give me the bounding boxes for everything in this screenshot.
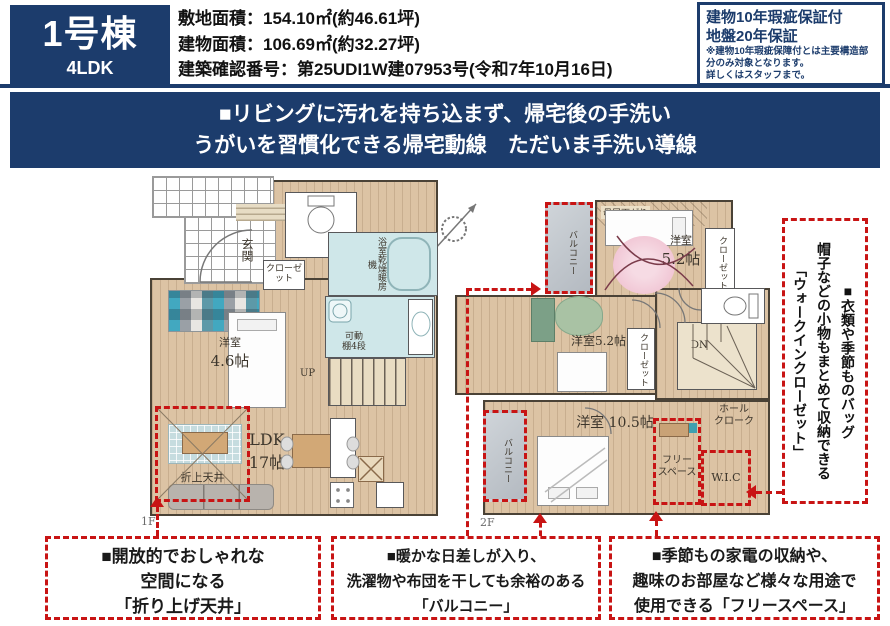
main-bed-pillow-2 [576,487,598,499]
stairs-down [677,322,757,390]
side-note-line-1: ■衣類や季節ものバッグ [836,227,860,495]
2f-main-bed [537,436,609,506]
stove [330,482,354,508]
free-space-item [689,423,697,433]
bath-dryer-label: 浴室乾燥暖房機 [366,236,386,292]
1f-floor-label: 1F [141,515,156,528]
side-note-line-3: 「ウォークインクローゼット」 [788,227,812,495]
kitchen-pantry-box [358,456,384,482]
coffered-ceiling-highlight-box [155,406,250,502]
unit-number: 1号棟 [10,11,170,57]
connector-freespace-arrow [649,511,663,521]
genkan-label: 玄関 [239,224,256,276]
balcony-bottom: バルコニー [483,410,527,502]
connector-balcony-bottom-line [539,522,542,536]
callout-coffered-ceiling: ■開放的でおしゃれな 空間になる 「折り上げ天井」 [45,536,321,620]
callout-balcony: ■暖かな日差しが入り、 洗濯物や布団を干しても余裕のある 「バルコニー」 [331,536,601,620]
connector-ceiling-arrow [150,497,164,507]
main-bed-pillow-1 [548,487,570,499]
floorplan-2f: バルコニー 母屋下がり 洋室 5.2帖 クローゼット 洋室5.2帖 クローゼット… [455,190,775,525]
connector-ceiling-line [156,506,159,536]
free-space-label: フリー スペース [656,455,698,479]
bed-pillow [237,319,277,331]
warranty-title-1: 建物10年瑕疵保証付 [706,8,876,27]
catchcopy-banner: ■リビングに汚れを持ち込まず、帰宅後の手洗い うがいを習慣化できる帰宅動線 ただ… [10,92,880,168]
2f-floor-label: 2F [480,516,495,529]
building-area: 建物面積：106.69㎡(約32.27坪) [178,32,693,58]
balcony-bottom-label: バルコニー [501,427,514,493]
connector-balcony-vline [466,290,469,536]
banner-line-2: うがいを習慣化できる帰宅動線 ただいま手洗い導線 [10,130,880,161]
connector-balcony-bottom-arrow [533,513,547,523]
callout-free-space: ■季節もの家電の収納や、 趣味のお部屋など様々な用途で 使用できる「フリースペー… [609,536,880,620]
connector-balcony-top-arrow [531,282,541,296]
movable-shelf-label: 可動 棚4段 [337,332,371,352]
banner-line-1: ■リビングに汚れを持ち込まず、帰宅後の手洗い [10,99,880,130]
2f-mid-bed [557,352,607,392]
room-52a-label: 洋室 5.2帖 [643,232,719,269]
bedroom-46-label: 洋室 4.6帖 [200,334,260,371]
unit-layout-type: 4LDK [10,57,170,79]
wic-highlight-box: W.I.C [701,450,751,506]
free-space-desk [659,423,689,437]
connector-wic-line [756,491,782,494]
unit-number-box: 1号棟 4LDK [10,5,170,84]
connector-freespace-line [655,520,658,536]
wic-side-note: ■衣類や季節ものバッグ 帽子などの小物もまとめて収納できる 「ウォークインクロー… [782,218,868,504]
balcony-top: バルコニー [545,202,593,294]
dn-label: DN [691,340,708,351]
hall-cloak-label: ホール クローク [703,404,765,428]
connector-wic-arrow [746,485,756,499]
up-label: UP [300,368,315,379]
refrigerator [376,482,404,508]
land-area: 敷地面積：154.10㎡(約46.61坪) [178,6,693,32]
wic-label: W.I.C [704,471,748,484]
balcony-top-label: バルコニー [566,219,579,285]
warranty-box: 建物10年瑕疵保証付 地盤20年保証 ※建物10年瑕疵保障付とは主要構造部分のみ… [697,2,885,86]
vanity [408,299,433,355]
floorplan-1f: 玄関 浴室乾燥暖房機 可動 棚4段 クローゼット 洋室 4.6帖 UP LDK … [140,172,440,522]
free-space-highlight-box: フリー スペース [653,418,701,505]
room-52b-label: 洋室5.2帖 [551,332,646,349]
warranty-note-1: ※建物10年瑕疵保障付とは主要構造部分のみ対象となります。 [706,46,876,70]
green-rug [555,296,603,336]
connector-balcony-hline [466,288,532,291]
stairs-up [328,358,406,406]
side-note-line-2: 帽子などの小物もまとめて収納できる [812,227,836,495]
2f-toilet-room [701,288,765,324]
warranty-note-2: 詳しくはスタッフまで。 [706,70,876,82]
confirmation-number: 建築確認番号：第25UDI1W建07953号(令和7年10月16日) [178,57,693,83]
warranty-title-2: 地盤20年保証 [706,27,876,46]
1f-closet-label: クローゼット [265,264,303,284]
header-divider [0,84,890,88]
kitchen-counter [330,418,356,478]
property-specs: 敷地面積：154.10㎡(約46.61坪) 建物面積：106.69㎡(約32.2… [178,6,693,83]
